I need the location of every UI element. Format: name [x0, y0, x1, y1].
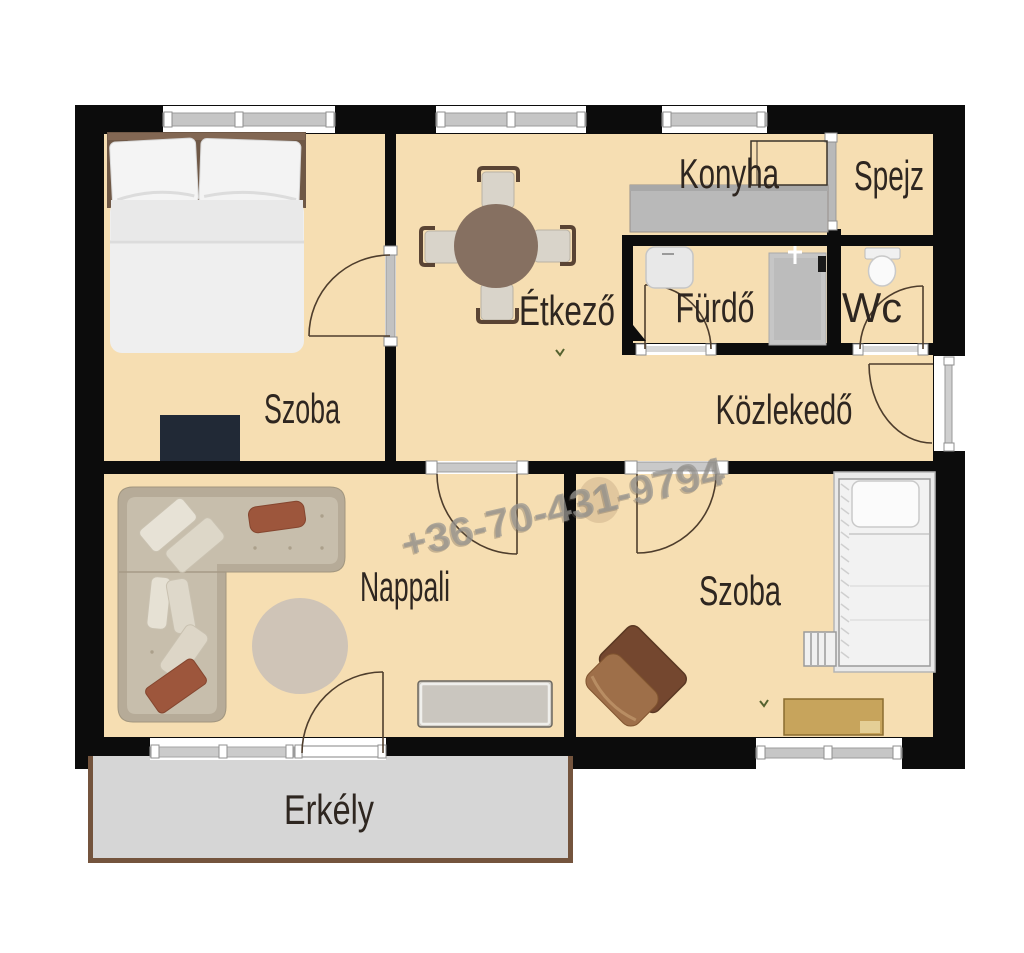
svg-text:Erkély: Erkély: [284, 786, 374, 833]
svg-text:Fürdő: Fürdő: [676, 284, 755, 331]
svg-text:Spejz: Spejz: [854, 152, 924, 199]
svg-text:Wc: Wc: [842, 284, 902, 331]
svg-text:Szoba: Szoba: [264, 385, 340, 432]
svg-text:Étkező: Étkező: [519, 287, 615, 334]
svg-text:Szoba: Szoba: [699, 567, 781, 614]
svg-text:Nappali: Nappali: [360, 563, 450, 610]
svg-text:Konyha: Konyha: [679, 150, 779, 197]
svg-text:Közlekedő: Közlekedő: [716, 386, 853, 433]
